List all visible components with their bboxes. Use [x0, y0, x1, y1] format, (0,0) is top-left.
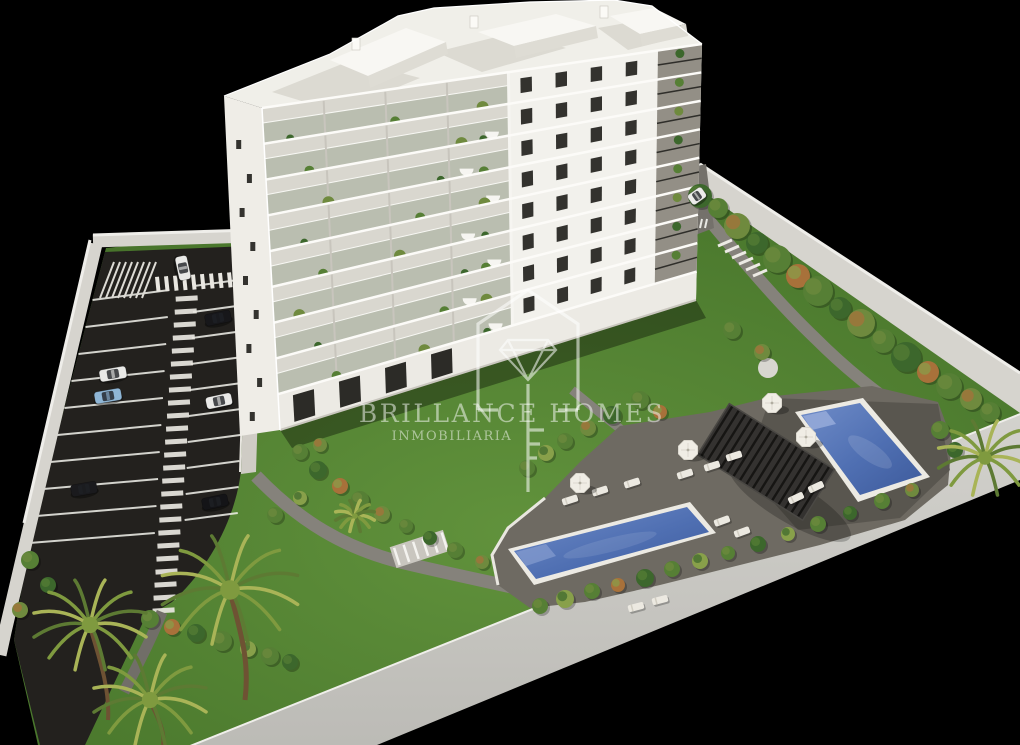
- watermark-tagline: INMOBILIARIA: [392, 429, 513, 444]
- watermark-brand: BRILLANCE HOMES: [359, 399, 665, 428]
- render-canvas: BRILLANCE HOMES INMOBILIARIA: [0, 0, 1020, 745]
- aerial-render: BRILLANCE HOMES INMOBILIARIA: [0, 0, 1020, 745]
